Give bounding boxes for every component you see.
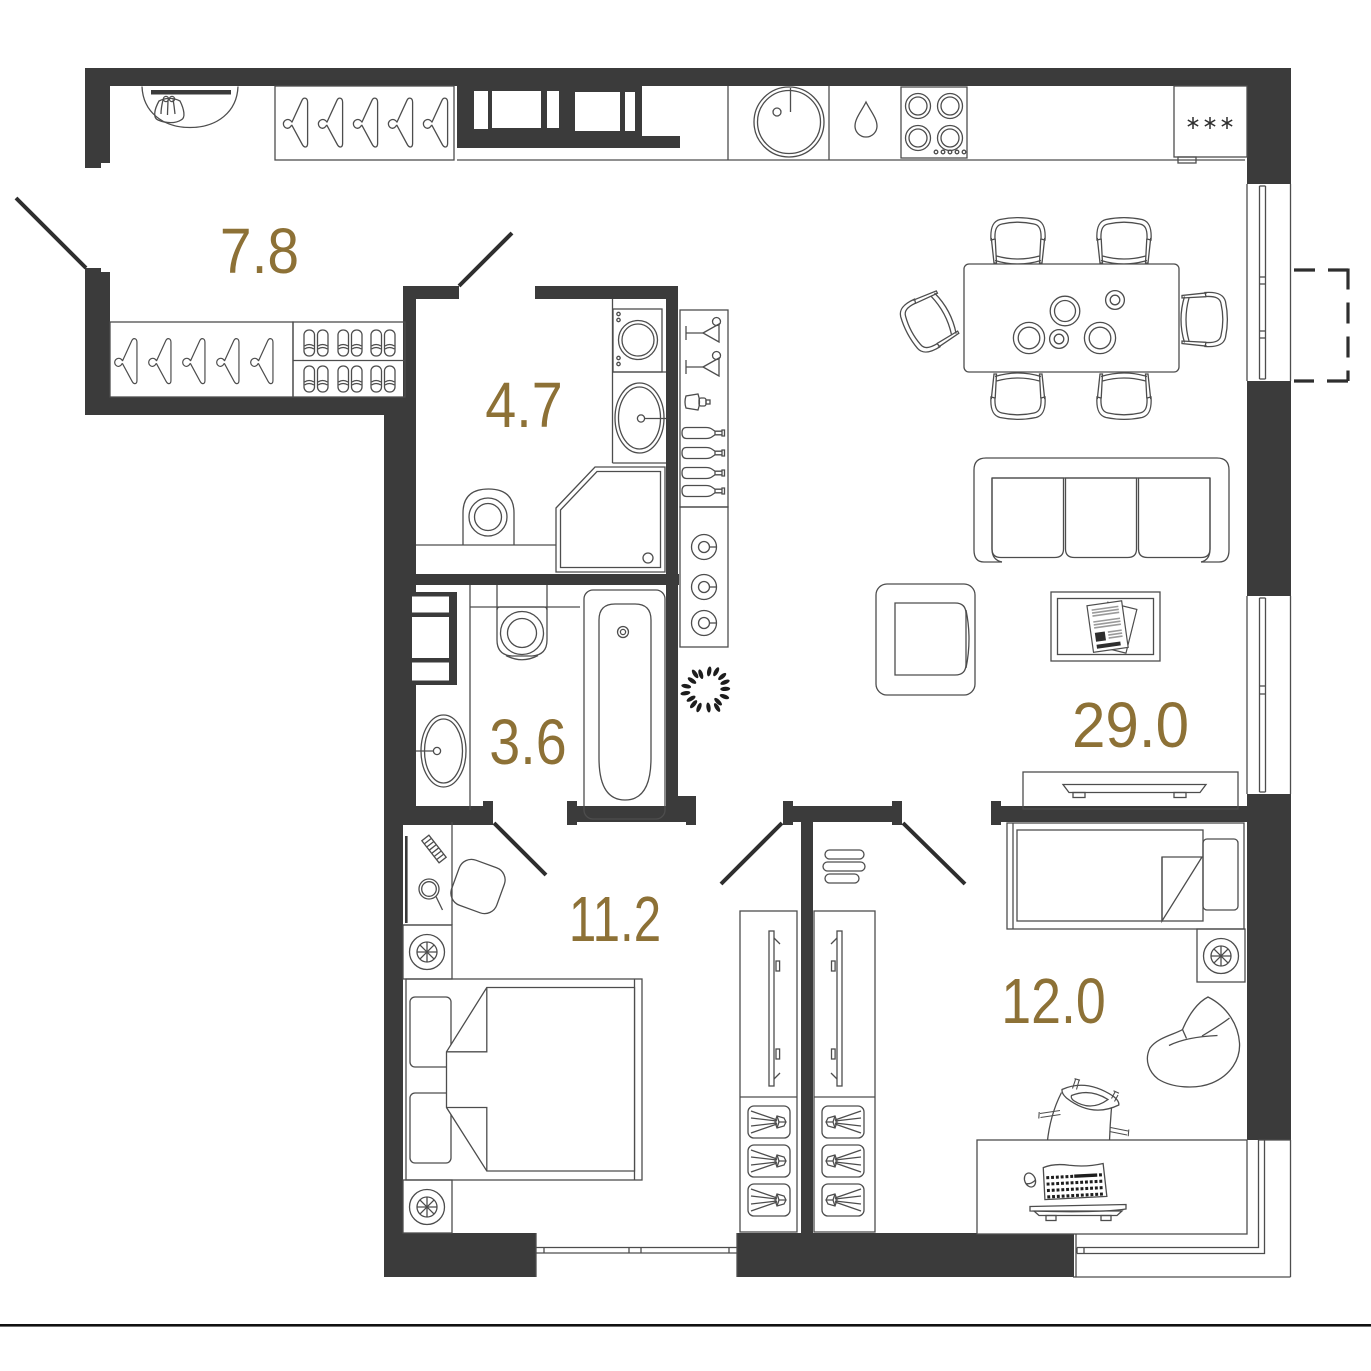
svg-text:3.6: 3.6 [489, 706, 566, 777]
svg-text:11.2: 11.2 [569, 884, 661, 956]
svg-text:7.8: 7.8 [220, 215, 299, 287]
svg-text:4.7: 4.7 [485, 369, 562, 440]
svg-text:29.0: 29.0 [1072, 690, 1189, 761]
svg-text:12.0: 12.0 [1001, 965, 1106, 1038]
